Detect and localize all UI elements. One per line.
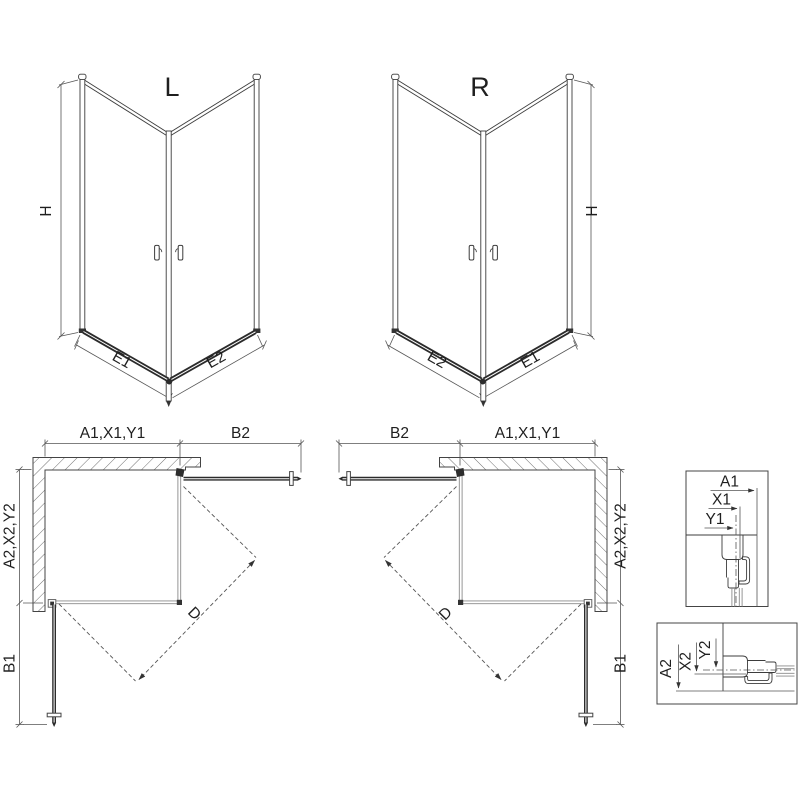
dim-y2-label: Y2 [697,641,714,660]
dim-a2-label: A2 [658,659,675,678]
shower-enclosure-drawing: L H E1 E2 R H E2 E1 A1,X1,Y1 B2 A2,X2,Y2… [0,0,800,800]
dim-a2x2y2-label: A2,X2,Y2 [2,503,19,569]
technical-drawing-page: L H E1 E2 R H E2 E1 A1,X1,Y1 B2 A2,X2,Y2… [0,0,800,800]
dim-b2-label: B2 [390,425,409,442]
dim-b1-label: B1 [613,654,630,673]
dim-b2-label: B2 [231,425,250,442]
dim-a1-label: A1 [720,474,739,491]
dim-a1x1y1-label: A1,X1,Y1 [80,425,146,442]
dim-height-label: H [584,205,601,216]
dim-x1-label: X1 [712,492,731,509]
version-label-left: L [164,72,179,102]
page-background [0,0,800,800]
dim-b1-label: B1 [2,654,19,673]
dim-a1x1y1-label: A1,X1,Y1 [495,425,561,442]
dim-y1-label: Y1 [706,511,725,528]
dim-a2x2y2-label: A2,X2,Y2 [613,503,630,569]
dim-height-label: H [38,205,55,216]
version-label-right: R [470,72,490,102]
dim-x2-label: X2 [678,652,695,671]
